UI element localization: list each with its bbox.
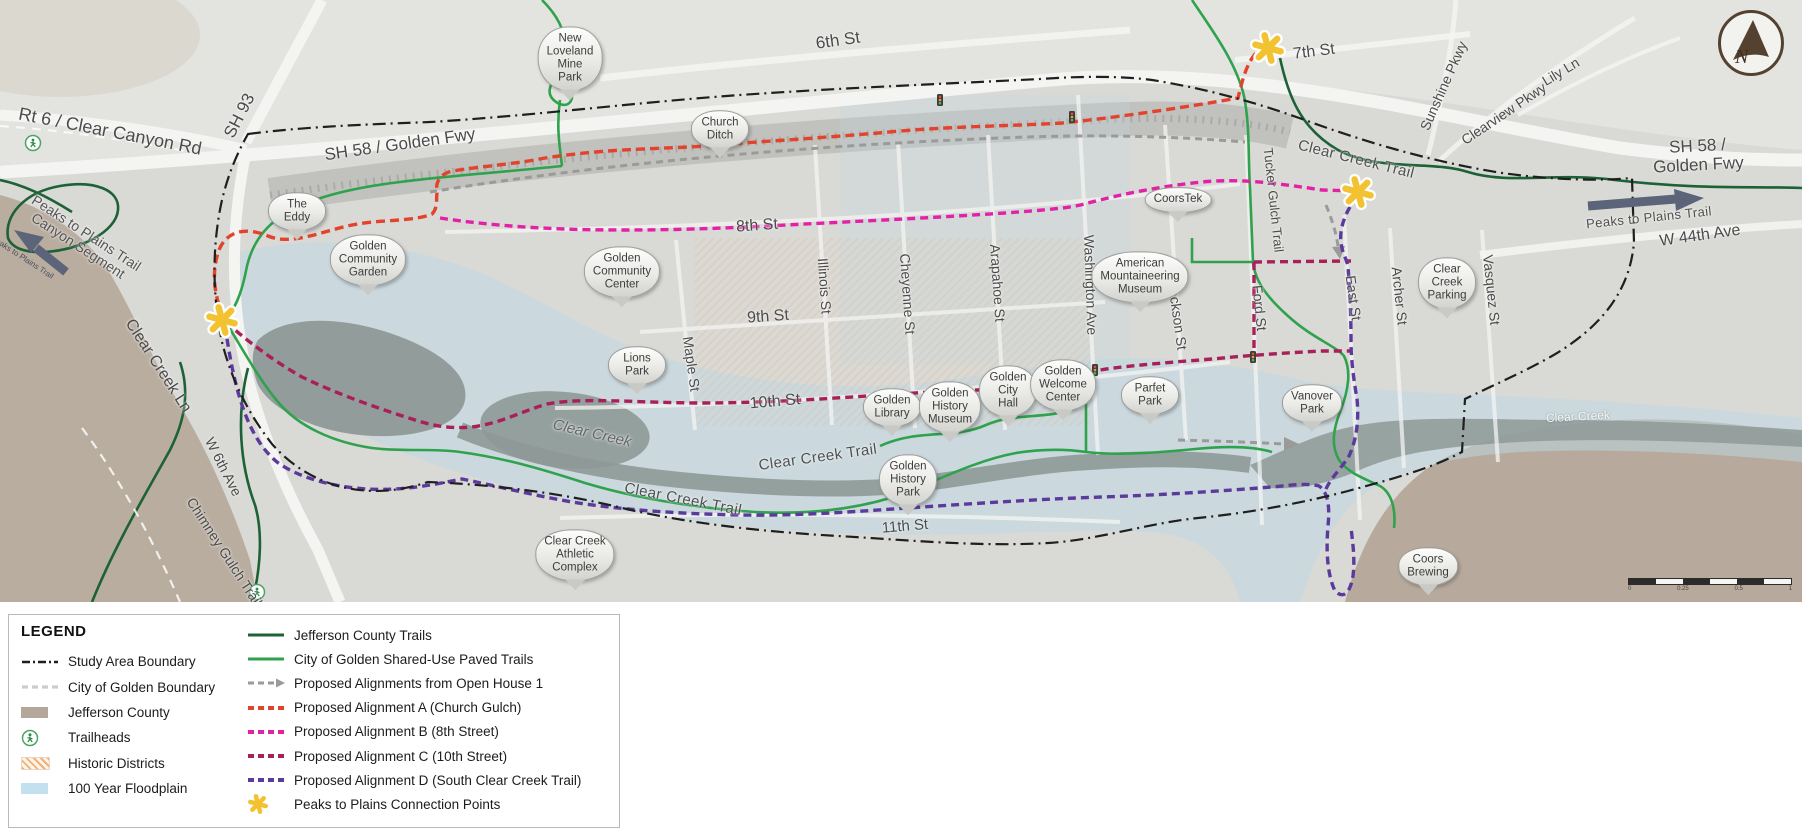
- legend-item-label: Jefferson County Trails: [294, 628, 432, 643]
- legend-item-label: Jefferson County: [68, 705, 170, 720]
- scale-bar-ticks: 00.250.51: [1628, 586, 1792, 592]
- map-graphics: [0, 0, 1802, 602]
- line-jeffco-swatch: [247, 629, 285, 641]
- legend-item-label: Study Area Boundary: [68, 654, 196, 669]
- north-arrow-icon: N: [1721, 13, 1781, 73]
- compass-n-letter: N: [1734, 46, 1750, 68]
- legend-item: City of Golden Boundary: [21, 674, 236, 699]
- legend-item: Proposed Alignment A (Church Gulch): [247, 696, 617, 720]
- legend-item-label: Proposed Alignment A (Church Gulch): [294, 700, 521, 715]
- legend-item: Study Area Boundary: [21, 649, 236, 674]
- legend-left-column: Study Area BoundaryCity of Golden Bounda…: [21, 649, 236, 801]
- legend-item: Proposed Alignments from Open House 1: [247, 671, 617, 695]
- star-swatch: [247, 793, 285, 815]
- legend-item-label: Proposed Alignment C (10th Street): [294, 749, 507, 764]
- citydash-swatch: [21, 681, 59, 693]
- legend-item-label: Proposed Alignments from Open House 1: [294, 676, 543, 691]
- legend-item-label: Proposed Alignment B (8th Street): [294, 724, 499, 739]
- historic-swatch: [21, 757, 59, 770]
- legend-right-column: Jefferson County TrailsCity of Golden Sh…: [247, 623, 617, 817]
- legend-item-label: Trailheads: [68, 730, 131, 745]
- dash-d-swatch: [247, 774, 285, 786]
- page: Rt 6 / Clear Canyon RdSH 93SH 58 / Golde…: [0, 0, 1802, 834]
- legend-item: Trailheads: [21, 725, 236, 750]
- legend-item-label: City of Golden Boundary: [68, 680, 215, 695]
- legend-item: Jefferson County Trails: [247, 623, 617, 647]
- dash-b-swatch: [247, 726, 285, 738]
- legend-item-label: Peaks to Plains Connection Points: [294, 797, 500, 812]
- scale-bar: 00.250.51: [1628, 578, 1792, 592]
- legend-item: Proposed Alignment C (10th Street): [247, 744, 617, 768]
- historic-district-area: [695, 238, 1090, 426]
- legend-item-label: Proposed Alignment D (South Clear Creek …: [294, 773, 581, 788]
- scale-bar-segments: [1628, 578, 1792, 585]
- legend-item-label: City of Golden Shared-Use Paved Trails: [294, 652, 533, 667]
- line-golden-swatch: [247, 653, 285, 665]
- dash-a-swatch: [247, 702, 285, 714]
- legend-item: Historic Districts: [21, 751, 236, 776]
- fill-county-swatch: [21, 707, 59, 718]
- legend-item: City of Golden Shared-Use Paved Trails: [247, 647, 617, 671]
- legend-item: Peaks to Plains Connection Points: [247, 792, 617, 816]
- fill-flood-swatch: [21, 783, 59, 794]
- legend-panel: LEGEND Study Area BoundaryCity of Golden…: [8, 614, 620, 828]
- map-canvas: Rt 6 / Clear Canyon RdSH 93SH 58 / Golde…: [0, 0, 1802, 602]
- legend-title: LEGEND: [21, 623, 87, 640]
- scale-tick-label: 0.25: [1677, 586, 1689, 592]
- scale-tick-label: 0: [1628, 586, 1631, 592]
- trailhead-swatch: [21, 729, 59, 747]
- dashdot-swatch: [21, 656, 59, 668]
- legend-item: Jefferson County: [21, 700, 236, 725]
- dash-gray-arrow-swatch: [247, 677, 285, 689]
- legend-item-label: 100 Year Floodplain: [68, 781, 187, 796]
- scale-tick-label: 0.5: [1735, 586, 1743, 592]
- legend-item-label: Historic Districts: [68, 756, 165, 771]
- scale-tick-label: 1: [1789, 586, 1792, 592]
- compass-rose: N: [1718, 10, 1784, 76]
- legend-item: Proposed Alignment D (South Clear Creek …: [247, 768, 617, 792]
- legend-item: Proposed Alignment B (8th Street): [247, 720, 617, 744]
- legend-item: 100 Year Floodplain: [21, 776, 236, 801]
- dash-c-swatch: [247, 750, 285, 762]
